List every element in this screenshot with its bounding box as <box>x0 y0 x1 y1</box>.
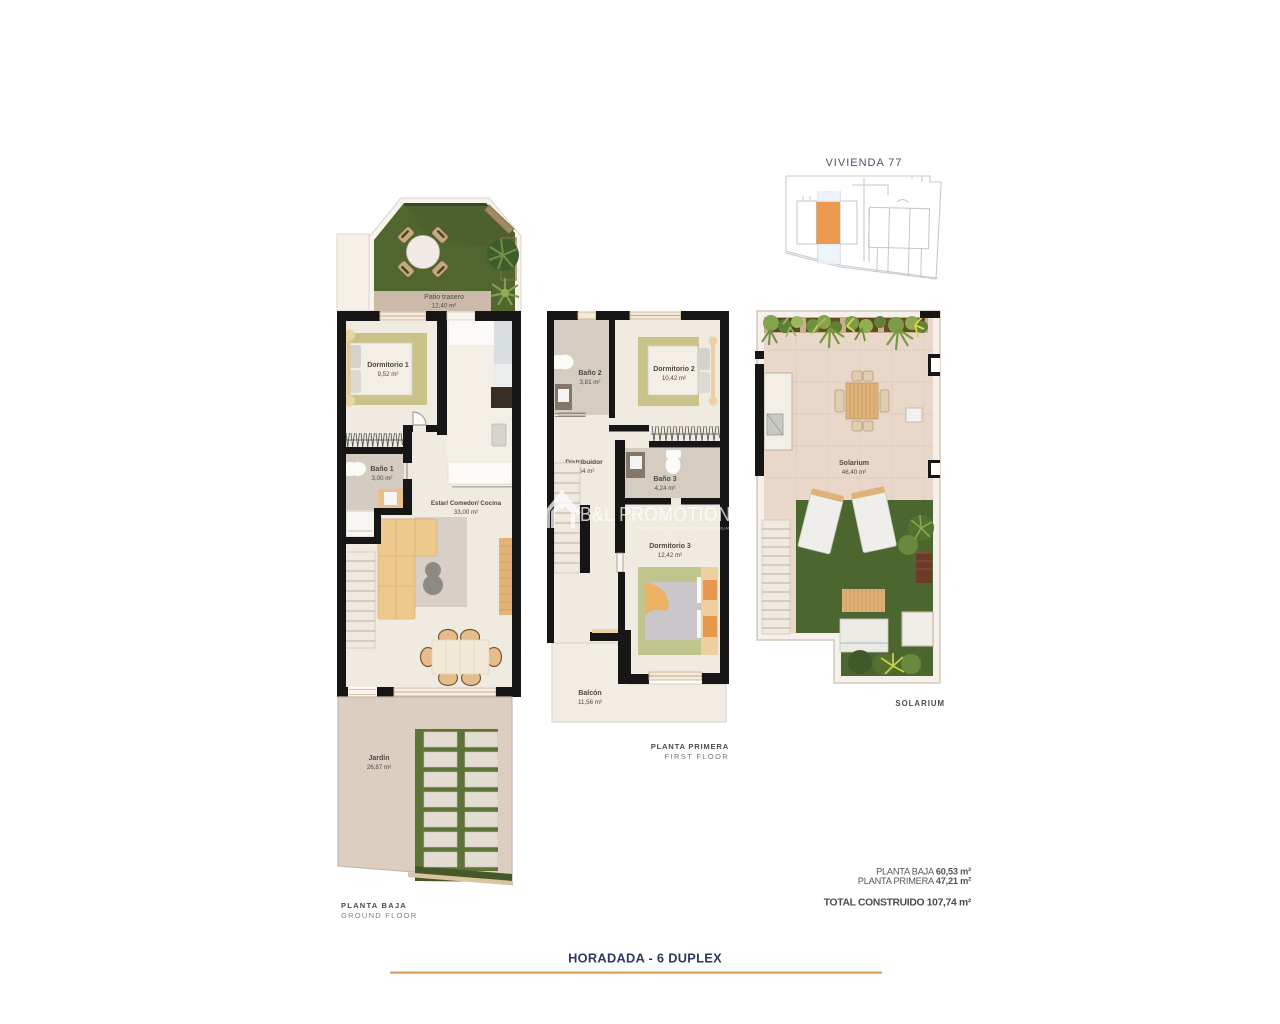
svg-text:3,81 m²: 3,81 m² <box>580 379 601 386</box>
svg-text:11,56 m²: 11,56 m² <box>578 699 602 706</box>
svg-text:Dormitorio 1: Dormitorio 1 <box>367 362 409 369</box>
svg-text:HORADADA - 6 DUPLEX: HORADADA - 6 DUPLEX <box>568 951 722 966</box>
svg-text:PLANTA PRIMERA 47,21 m²: PLANTA PRIMERA 47,21 m² <box>858 876 971 886</box>
svg-text:4,24 m²: 4,24 m² <box>655 485 676 492</box>
svg-text:3,00 m²: 3,00 m² <box>372 475 393 482</box>
svg-text:PLANTA PRIMERA: PLANTA PRIMERA <box>651 742 729 751</box>
svg-text:TOTAL CONSTRUIDO 107,74 m²: TOTAL CONSTRUIDO 107,74 m² <box>824 898 972 909</box>
svg-text:Dormitorio 2: Dormitorio 2 <box>653 366 695 373</box>
svg-text:12,40 m²: 12,40 m² <box>432 303 456 310</box>
svg-text:26,87 m²: 26,87 m² <box>367 764 391 771</box>
svg-text:PROMOCIONES Y CONSTRUCCIONES I: PROMOCIONES Y CONSTRUCCIONES INMOBILIARI… <box>637 527 738 531</box>
svg-text:Patio trasero: Patio trasero <box>424 294 464 301</box>
svg-text:33,00 m²: 33,00 m² <box>454 509 478 516</box>
svg-text:VIVIENDA 77: VIVIENDA 77 <box>825 157 902 169</box>
svg-text:GROUND FLOOR: GROUND FLOOR <box>341 911 417 920</box>
svg-text:10,42 m²: 10,42 m² <box>662 375 686 382</box>
svg-text:Jardín: Jardín <box>368 755 389 762</box>
svg-text:PLANTA BAJA 60,53 m²: PLANTA BAJA 60,53 m² <box>876 867 971 877</box>
svg-text:SOLARIUM: SOLARIUM <box>895 699 945 708</box>
svg-text:PLANTA BAJA: PLANTA BAJA <box>341 901 407 910</box>
svg-text:Solarium: Solarium <box>839 460 869 467</box>
svg-text:B&L PROMOTION: B&L PROMOTION <box>580 504 731 527</box>
svg-text:Baño 3: Baño 3 <box>653 476 676 483</box>
svg-text:Dormitorio 3: Dormitorio 3 <box>649 543 691 550</box>
svg-text:46,40 m²: 46,40 m² <box>842 469 866 476</box>
svg-text:Baño 1: Baño 1 <box>370 466 393 473</box>
svg-text:9,52 m²: 9,52 m² <box>378 371 399 378</box>
svg-text:Baño 2: Baño 2 <box>578 370 601 377</box>
svg-text:12,42 m²: 12,42 m² <box>658 552 682 559</box>
svg-text:Estar/ Comedor/ Cocina: Estar/ Comedor/ Cocina <box>431 500 502 507</box>
svg-text:Balcón: Balcón <box>578 690 601 697</box>
svg-text:FIRST FLOOR: FIRST FLOOR <box>665 752 729 761</box>
